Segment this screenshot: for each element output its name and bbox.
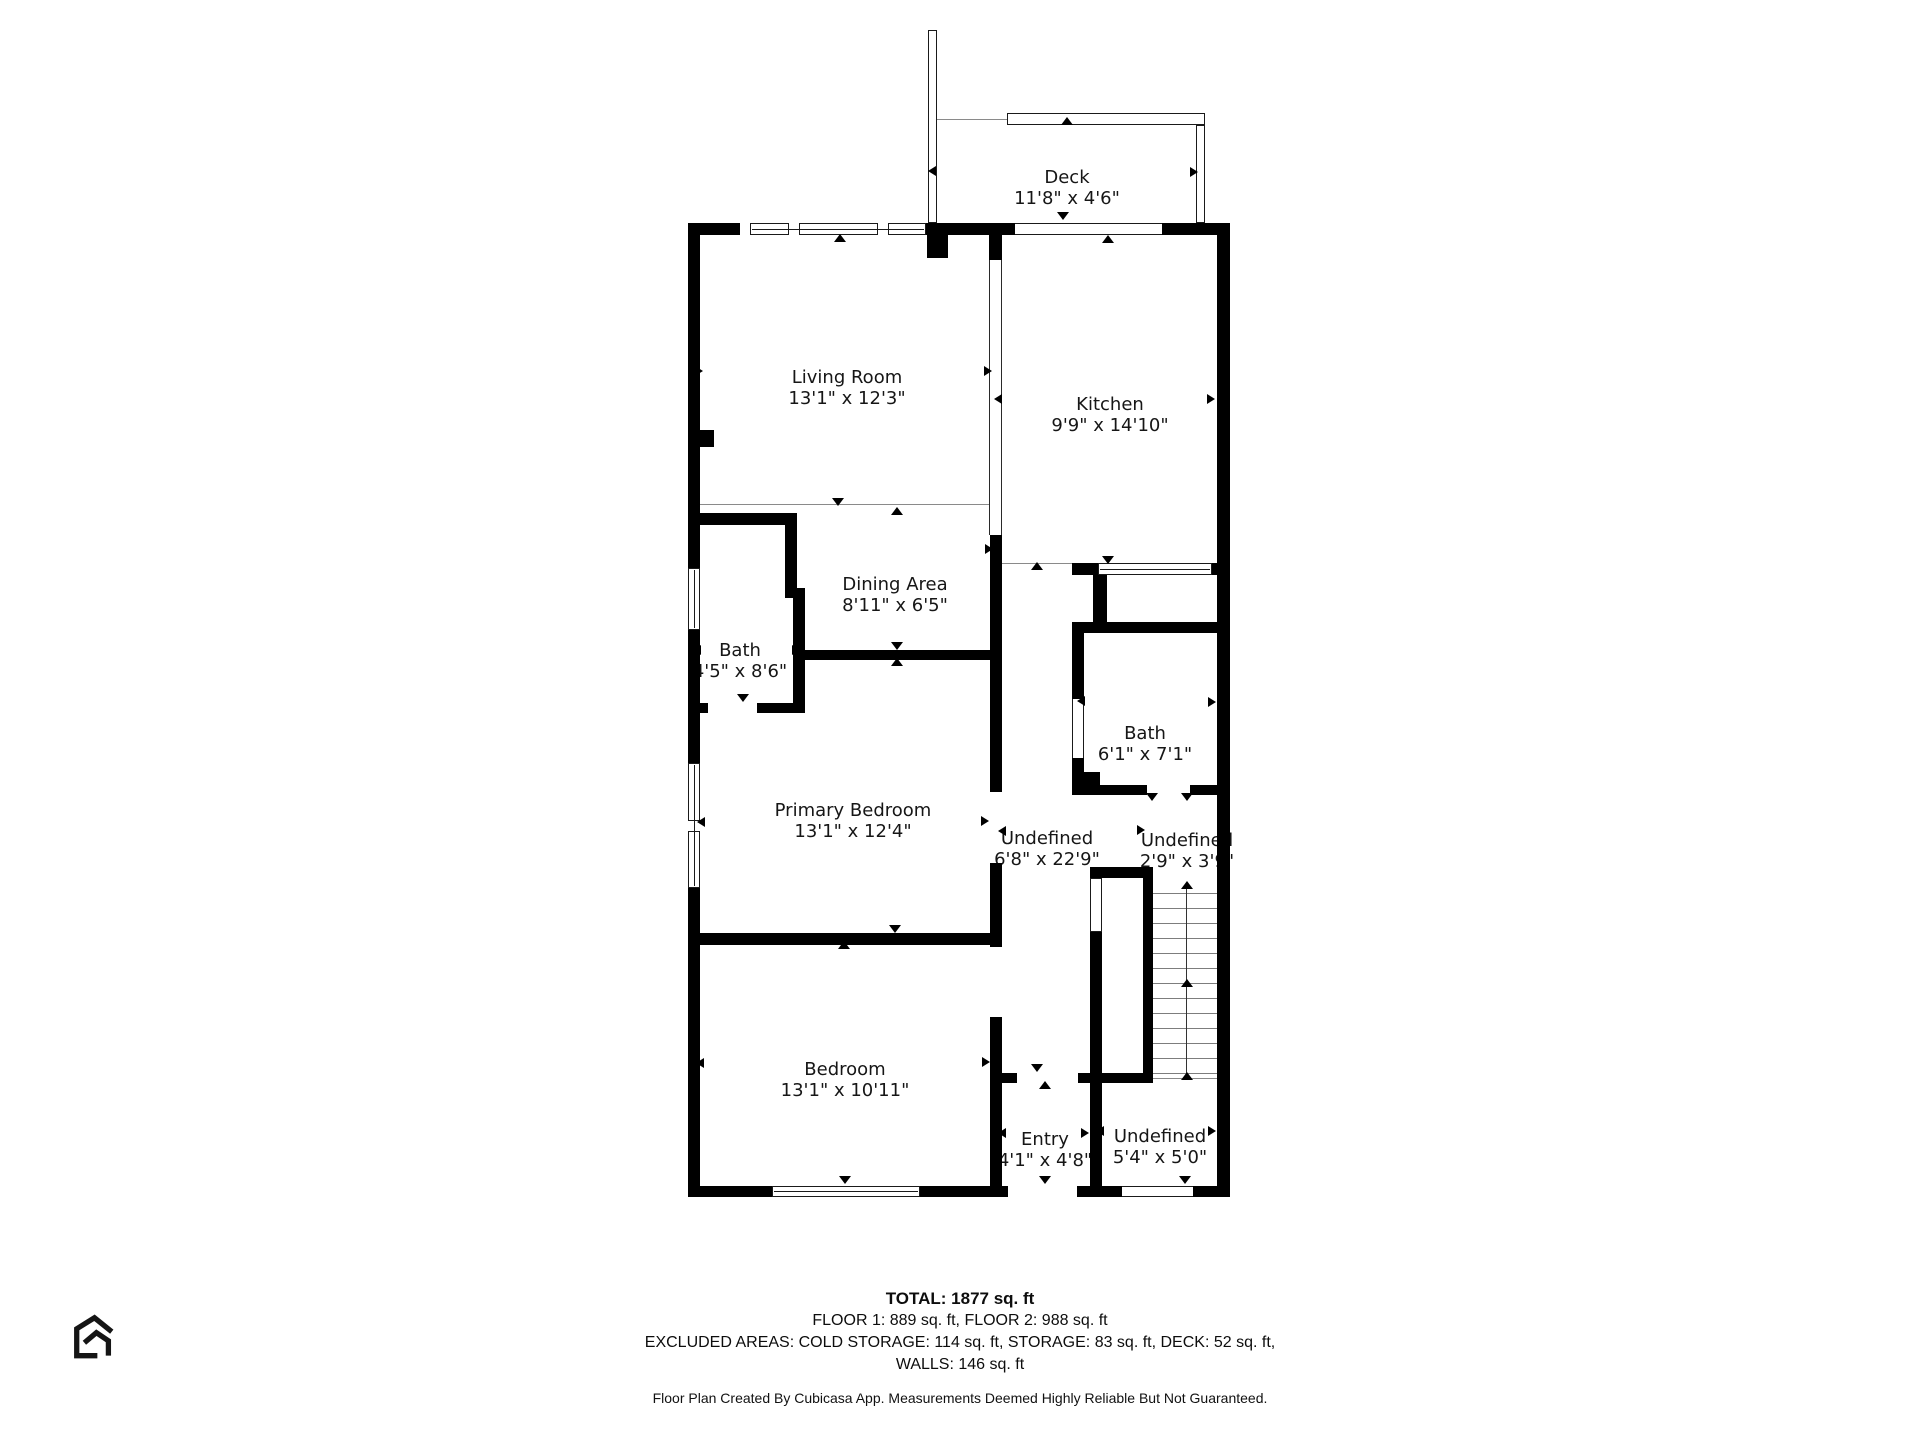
window-pane-line [694,570,695,628]
stair-tread [1153,893,1217,894]
wall-segment [805,650,1002,660]
direction-arrow-icon [1151,624,1163,632]
room-name: Entry [998,1129,1092,1150]
direction-arrow-icon [891,507,903,515]
room-label-dining-area: Dining Area8'11" x 6'5" [842,574,948,616]
walls-area-text: WALLS: 146 sq. ft [0,1354,1920,1376]
room-label-primary-bedroom: Primary Bedroom13'1" x 12'4" [775,800,932,842]
stair-tread [1153,953,1217,954]
room-dims: 4'5" x 8'6" [693,661,787,682]
wall-segment [926,223,1015,235]
direction-arrow-icon [985,544,993,554]
direction-arrow-icon [1207,394,1215,404]
wall-segment [1072,563,1098,575]
direction-arrow-icon [737,694,749,702]
direction-arrow-icon [891,658,903,666]
wall-segment [990,1017,1002,1186]
room-label-hallway: Undefined6'8" x 22'9" [994,828,1100,870]
direction-arrow-icon [697,817,705,827]
room-dims: 8'11" x 6'5" [842,595,948,616]
direction-arrow-icon [928,166,936,176]
direction-arrow-icon [1096,1126,1104,1136]
room-name: Bath [1098,723,1192,744]
deck-railing [928,30,937,223]
wall-segment [785,588,805,598]
direction-arrow-icon [839,1176,851,1184]
wall-segment [990,535,1002,792]
wall-segment [757,703,805,713]
room-label-living-room: Living Room13'1" x 12'3" [788,367,905,409]
stair-railing [1090,878,1102,932]
door-opening [1122,1186,1193,1197]
direction-arrow-icon [834,234,846,242]
direction-arrow-icon [792,645,800,655]
room-name: Dining Area [842,574,948,595]
wall-segment [1093,575,1107,622]
window-pane-line [752,229,924,230]
wall-segment [920,1186,1008,1197]
direction-arrow-icon [1181,793,1193,801]
direction-arrow-icon [1208,697,1216,707]
room-dims: 5'4" x 5'0" [1113,1147,1207,1168]
wall-segment [1090,867,1153,878]
direction-arrow-icon [1081,1128,1089,1138]
wall-segment [1212,563,1217,575]
room-name: Living Room [788,367,905,388]
room-label-bath-2: Bath6'1" x 7'1" [1098,723,1192,765]
room-dims: 4'1" x 4'8" [998,1150,1092,1171]
floor-plan-canvas: Deck11'8" x 4'6"Living Room13'1" x 12'3"… [0,0,1920,1440]
direction-arrow-icon [695,366,703,376]
direction-arrow-icon [994,394,1002,404]
wall-segment [1217,223,1230,1197]
room-dims: 6'8" x 22'9" [994,849,1100,870]
direction-arrow-icon [832,498,844,506]
direction-arrow-icon [1031,562,1043,570]
room-dims: 13'1" x 12'4" [775,821,932,842]
direction-arrow-icon [1102,556,1114,564]
window-pane-line [1100,569,1210,570]
room-name: Kitchen [1051,394,1168,415]
direction-arrow-icon [1146,793,1158,801]
wall-segment [1077,1186,1122,1197]
direction-arrow-icon [1077,696,1085,706]
page: { "page": {"background": "#ffffff", "wal… [0,0,1920,1440]
direction-arrow-icon [838,941,850,949]
sliding-door-opening [1015,223,1162,235]
room-label-deck: Deck11'8" x 4'6" [1014,167,1120,209]
excluded-areas-text: EXCLUDED AREAS: COLD STORAGE: 114 sq. ft… [0,1332,1920,1354]
room-name: Deck [1014,167,1120,188]
wall-segment [989,235,1002,260]
room-name: Primary Bedroom [775,800,932,821]
direction-arrow-icon [1102,235,1114,243]
open-boundary-line [700,504,989,505]
wall-segment [1072,785,1147,795]
wall-segment [927,235,948,258]
disclaimer-text: Floor Plan Created By Cubicasa App. Meas… [0,1390,1920,1406]
wall-segment [688,703,708,713]
direction-arrow-icon [1181,881,1193,889]
deck-railing [1007,113,1205,125]
direction-arrow-icon [696,1058,704,1068]
direction-arrow-icon [1031,1064,1043,1072]
room-dims: 11'8" x 4'6" [1014,188,1120,209]
wall-segment [1143,878,1153,1078]
wall-segment [785,513,797,598]
room-name: Bath [693,640,787,661]
room-name: Undefined [1113,1126,1207,1147]
direction-arrow-icon [982,1057,990,1067]
direction-arrow-icon [1181,979,1193,987]
wall-segment [1084,772,1100,785]
stair-tread [1153,923,1217,924]
direction-arrow-icon [891,642,903,650]
direction-arrow-icon [1179,1176,1191,1184]
room-label-storage: Undefined5'4" x 5'0" [1113,1126,1207,1168]
direction-arrow-icon [1039,1176,1051,1184]
room-dims: 13'1" x 10'11" [781,1080,910,1101]
wall-segment [1072,633,1084,699]
wall-segment [1190,785,1217,795]
stair-tread [1153,998,1217,999]
room-label-entry: Entry4'1" x 4'8" [998,1129,1092,1171]
room-dims: 9'9" x 14'10" [1051,415,1168,436]
wall-segment [793,598,805,713]
total-area-text: TOTAL: 1877 sq. ft [0,1288,1920,1310]
wall-segment [1072,758,1084,785]
wall-segment [1090,932,1102,1078]
door-opening [1072,699,1084,758]
stair-tread [1153,938,1217,939]
wall-segment [1193,1186,1230,1197]
direction-arrow-icon [889,925,901,933]
direction-arrow-icon [1137,825,1145,835]
room-name: Undefined [994,828,1100,849]
stair-tread [1153,1013,1217,1014]
stair-tread [1153,908,1217,909]
room-label-bedroom: Bedroom13'1" x 10'11" [781,1059,910,1101]
room-name: Bedroom [781,1059,910,1080]
room-dims: 13'1" x 12'3" [788,388,905,409]
direction-arrow-icon [1181,1072,1193,1080]
direction-arrow-icon [984,366,992,376]
direction-arrow-icon [998,1128,1006,1138]
floor-areas-text: FLOOR 1: 889 sq. ft, FLOOR 2: 988 sq. ft [0,1310,1920,1332]
wall-segment [990,1073,1017,1083]
direction-arrow-icon [693,645,701,655]
room-label-bath-1: Bath4'5" x 8'6" [693,640,787,682]
stair-tread [1153,1043,1217,1044]
direction-arrow-icon [998,826,1006,836]
room-dims: 6'1" x 7'1" [1098,744,1192,765]
direction-arrow-icon [1039,1081,1051,1089]
window-pane-line [694,765,695,886]
open-boundary-line [937,119,1007,120]
wall-segment [1072,622,1217,633]
summary-footer: TOTAL: 1877 sq. ft FLOOR 1: 889 sq. ft, … [0,1288,1920,1376]
wall-segment [688,223,740,235]
direction-arrow-icon [981,816,989,826]
wall-segment [1078,1073,1153,1083]
direction-arrow-icon [736,515,748,523]
wall-segment [700,430,714,447]
stair-tread [1153,1058,1217,1059]
room-label-kitchen: Kitchen9'9" x 14'10" [1051,394,1168,436]
window-pane-line [774,1191,918,1192]
direction-arrow-icon [1208,1126,1216,1136]
direction-arrow-icon [1061,117,1073,125]
direction-arrow-icon [1190,167,1198,177]
direction-arrow-icon [1057,212,1069,220]
stair-tread [1153,1028,1217,1029]
stair-tread [1153,968,1217,969]
wall-segment [688,1186,772,1197]
